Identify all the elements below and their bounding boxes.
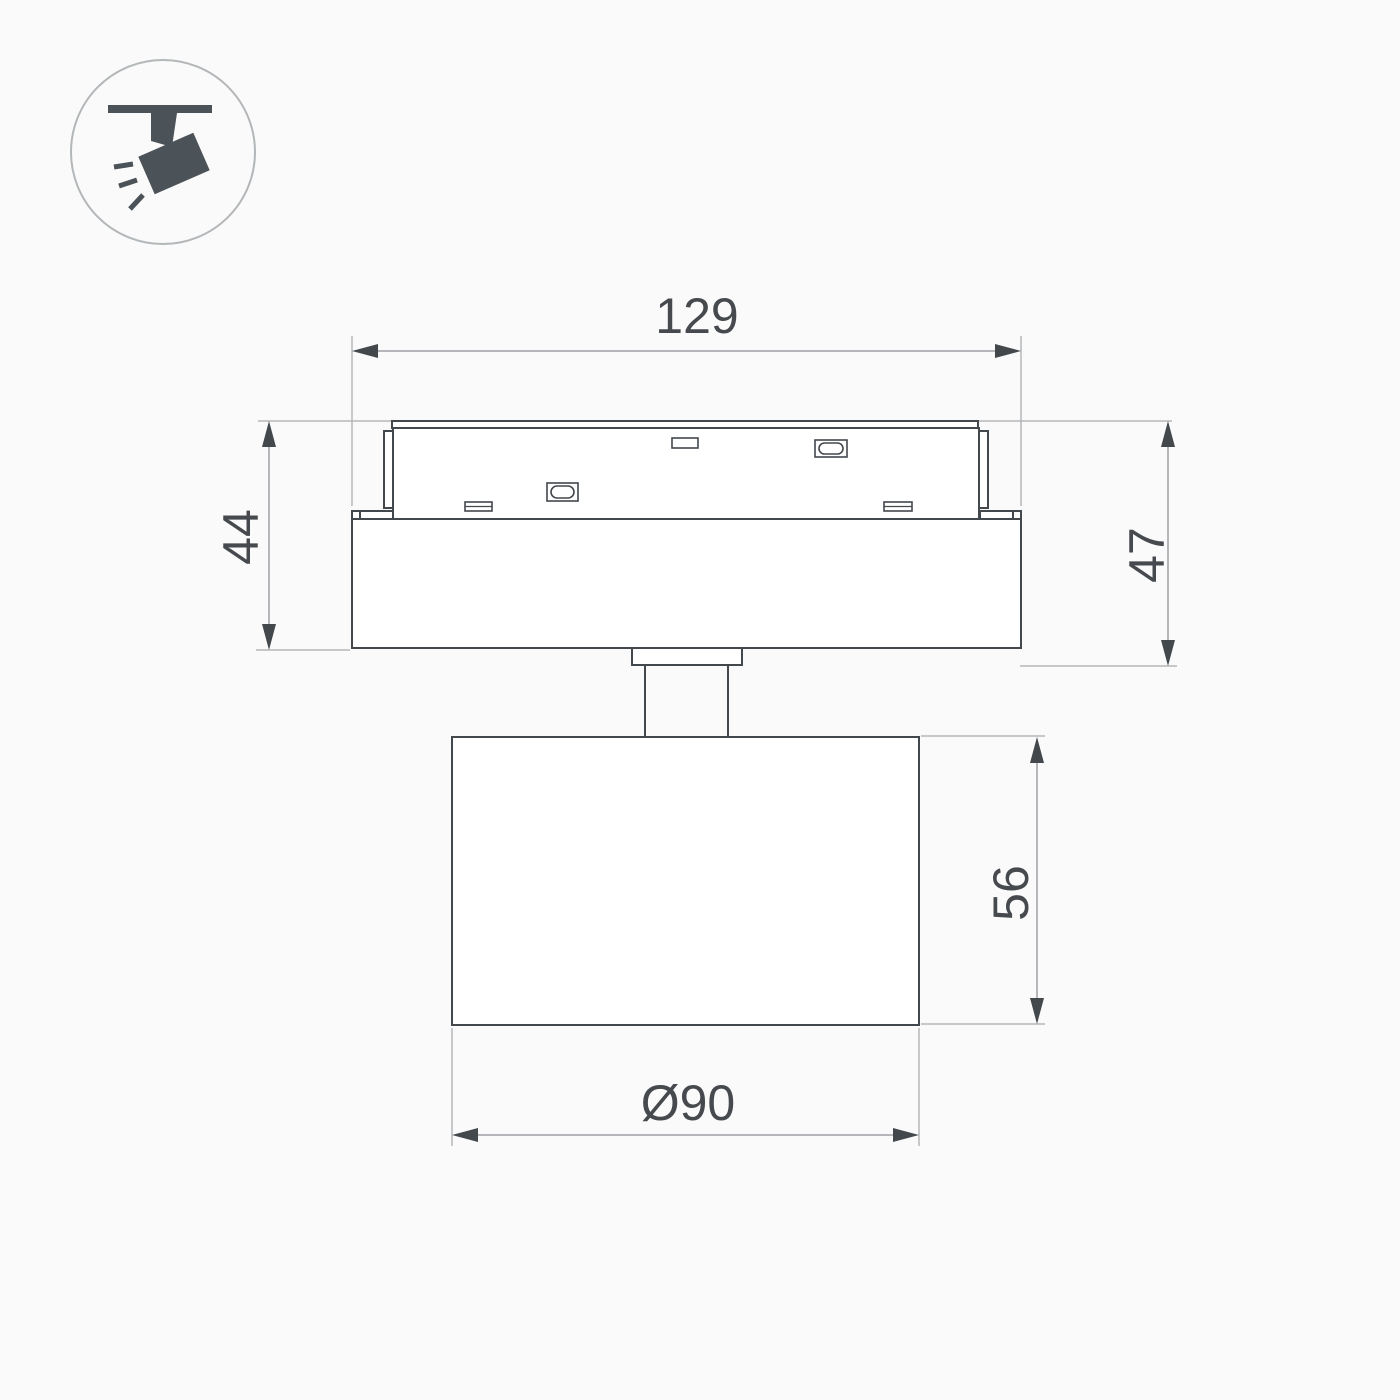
driver-housing-body bbox=[352, 519, 1021, 648]
slot-button-left-inner bbox=[551, 486, 574, 498]
dim-head-diameter: Ø90 bbox=[452, 1075, 919, 1142]
driver-housing bbox=[352, 511, 1021, 648]
housing-lip-right bbox=[980, 511, 1021, 519]
track-adapter bbox=[384, 421, 988, 519]
adapter-right-tab bbox=[979, 431, 988, 508]
arrow-right-90 bbox=[893, 1128, 919, 1142]
adapter-top-cap bbox=[392, 421, 978, 428]
dim-left-height: 44 bbox=[213, 421, 276, 650]
arrow-up-47 bbox=[1161, 421, 1175, 447]
joint-stem bbox=[645, 665, 728, 737]
dim-head-height: 56 bbox=[983, 737, 1044, 1024]
adapter-left-tab bbox=[384, 431, 393, 508]
mount-type-icon bbox=[71, 60, 255, 244]
spotlight-body-icon bbox=[138, 133, 209, 195]
dim-label-head-height: 56 bbox=[983, 865, 1039, 921]
dim-label-left-height: 44 bbox=[213, 509, 269, 565]
arrow-up-44 bbox=[262, 421, 276, 447]
light-rays-icon bbox=[114, 164, 143, 209]
slot-button-right-inner bbox=[819, 443, 843, 454]
arrow-down-56 bbox=[1030, 998, 1044, 1024]
arrow-right-129 bbox=[995, 344, 1021, 358]
dim-label-top-width: 129 bbox=[655, 288, 738, 344]
dim-label-head-diameter: Ø90 bbox=[641, 1075, 736, 1131]
arrow-up-56 bbox=[1030, 737, 1044, 763]
lamp-head bbox=[452, 737, 919, 1025]
arrow-left-90 bbox=[452, 1128, 478, 1142]
arrow-down-44 bbox=[262, 624, 276, 650]
ceiling-bar bbox=[108, 105, 212, 113]
housing-lip-left bbox=[352, 511, 393, 519]
dimension-drawing-canvas: 129 44 47 56 Ø90 bbox=[0, 0, 1400, 1400]
dim-right-height: 47 bbox=[1119, 421, 1175, 666]
dim-label-right-height: 47 bbox=[1119, 527, 1175, 583]
dim-top-width: 129 bbox=[352, 288, 1021, 358]
arrow-left-129 bbox=[352, 344, 378, 358]
joint-flange bbox=[632, 648, 742, 665]
swivel-joint bbox=[632, 648, 742, 737]
slot-small-top bbox=[672, 438, 698, 448]
drawing-page: 129 44 47 56 Ø90 bbox=[0, 0, 1400, 1400]
arrow-down-47 bbox=[1161, 640, 1175, 666]
